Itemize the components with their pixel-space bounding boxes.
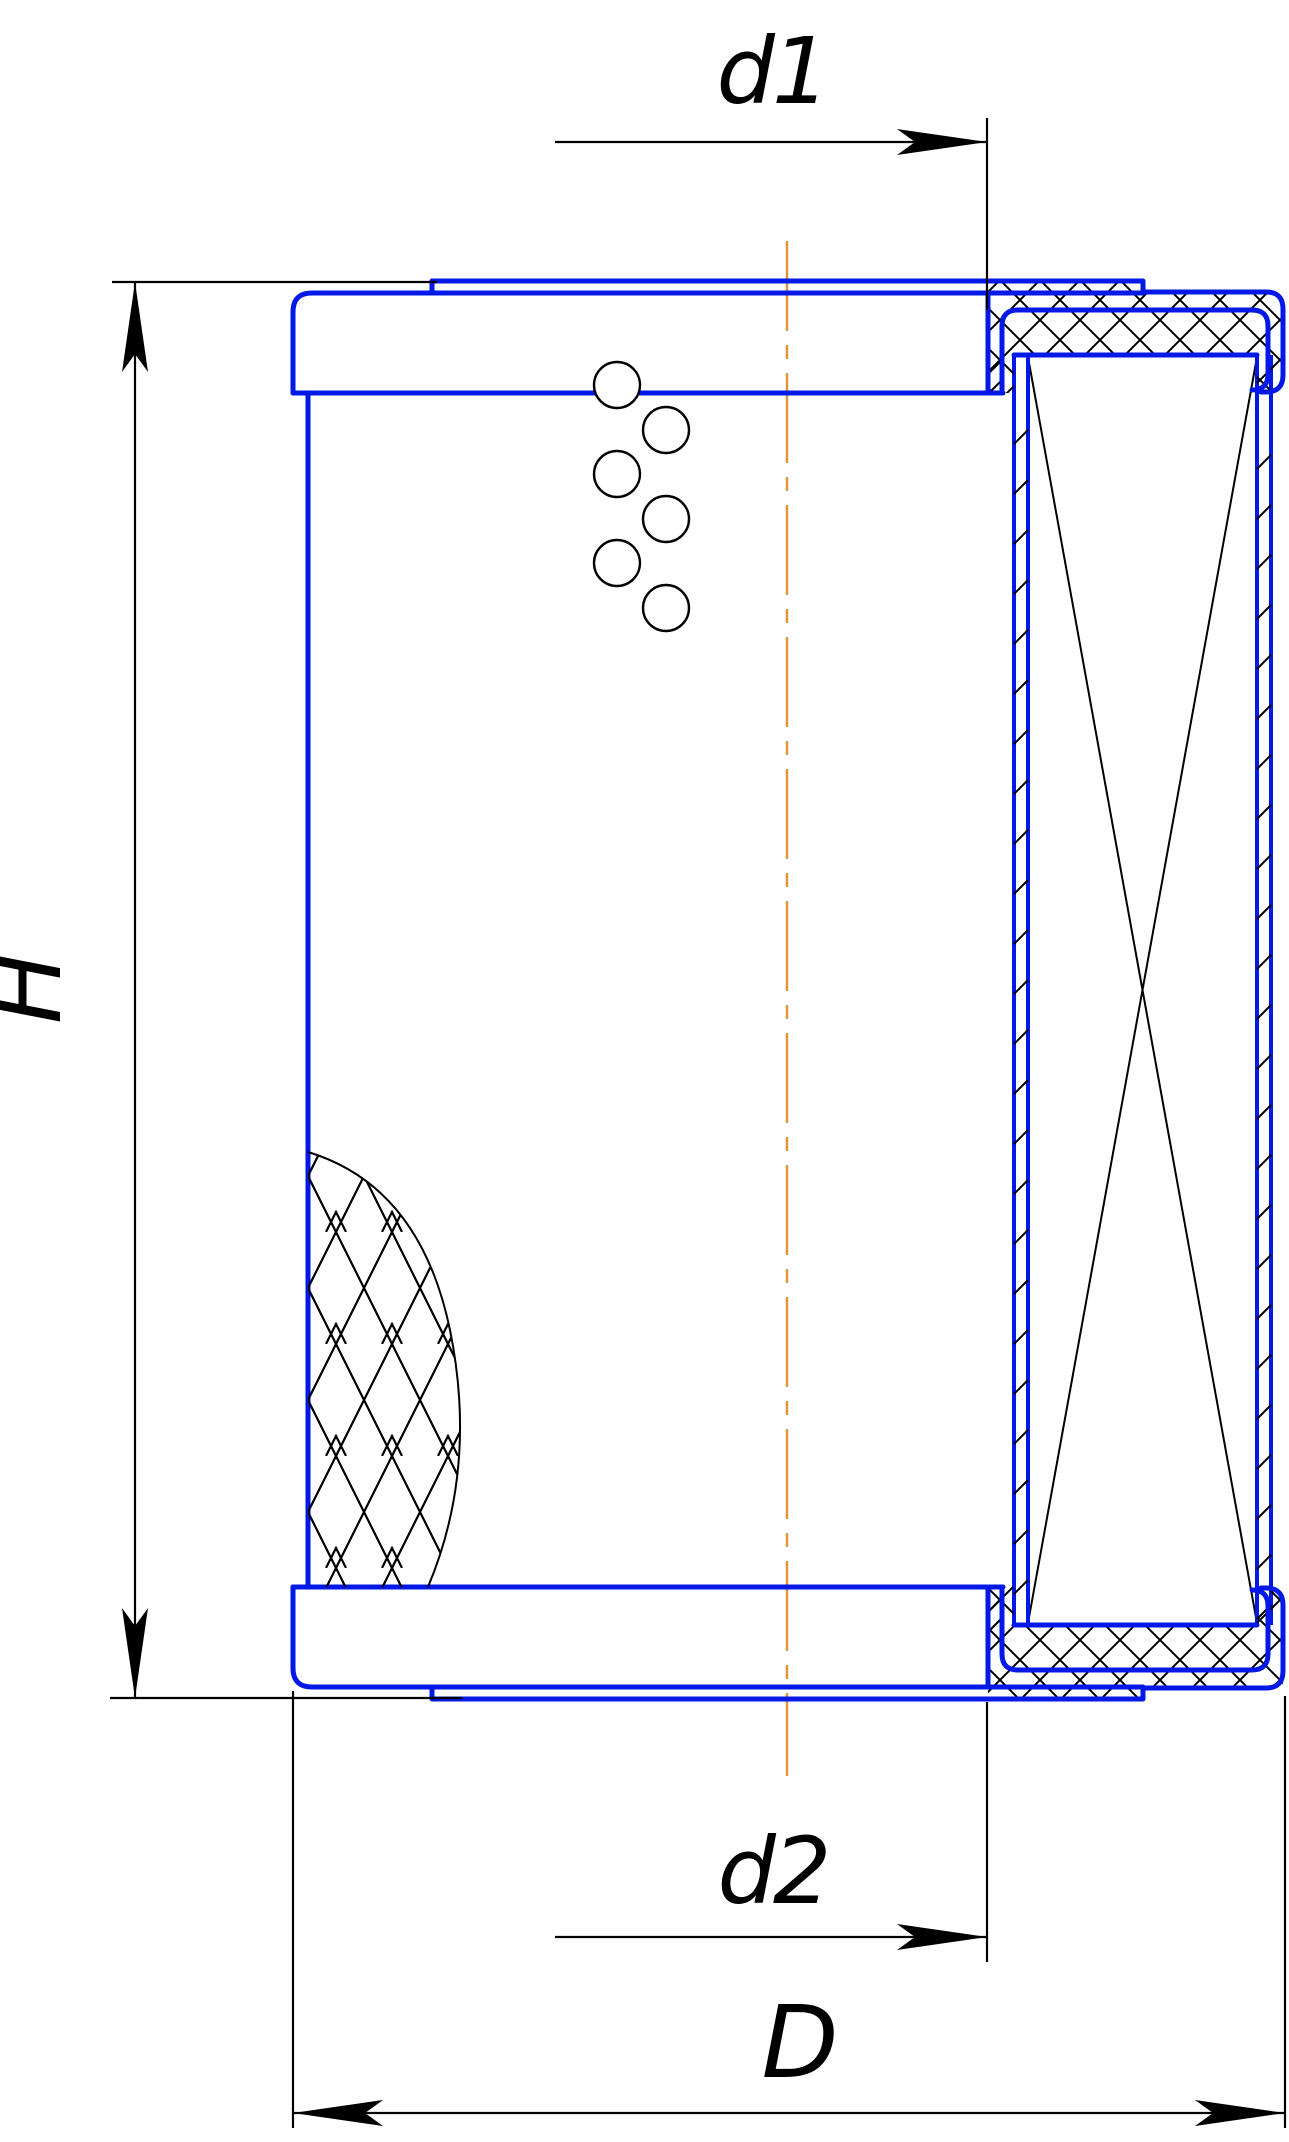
perforation-hole [594,362,640,408]
wall-hatch-ticks [988,360,1271,1632]
dimension-label-d2: d2 [718,1818,829,1925]
filter-element-section-drawing: d1 H d2 D [0,0,1289,2142]
perforation-hole [643,496,689,542]
mesh-screen-cutaway [300,1140,490,1590]
perforation-hole [643,585,689,631]
dimension-d2: d2 [555,1702,987,1962]
drawing-canvas: d1 H d2 D [0,0,1289,2142]
perforation-hole [594,540,640,586]
filter-media-block [988,355,1271,1632]
perforation-holes [594,362,689,631]
perforation-hole [594,451,640,497]
dimension-label-d1: d1 [717,18,828,125]
dimension-d1: d1 [555,18,987,310]
dimension-label-h: H [0,952,83,1024]
perforation-hole [643,407,689,453]
dimension-label-d: D [761,1984,838,2101]
media-cross-lines [1028,357,1257,1623]
